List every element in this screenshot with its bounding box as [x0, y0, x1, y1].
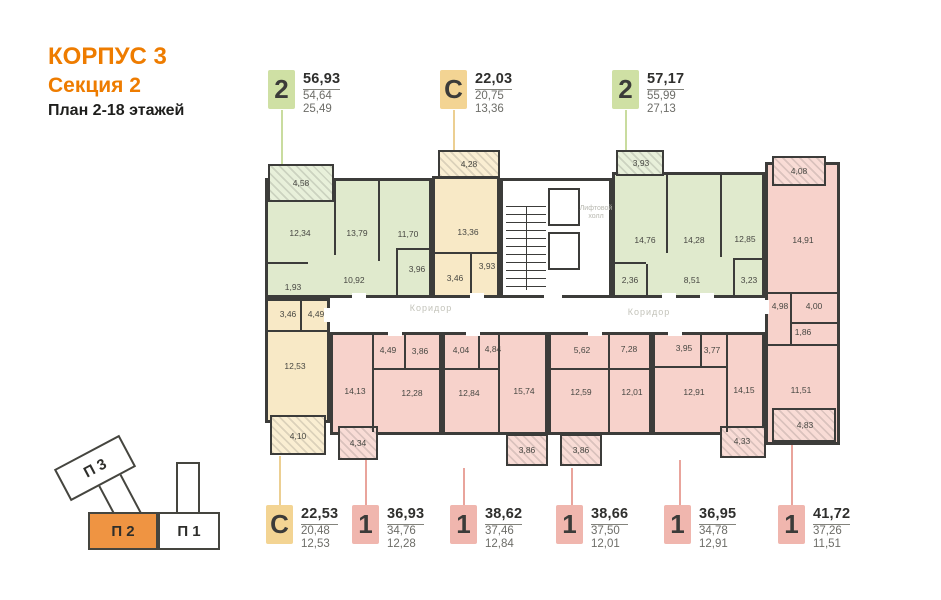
leader-line — [679, 460, 681, 505]
total-area: 56,93 — [303, 71, 340, 90]
room-area-label: 4,34 — [350, 438, 367, 448]
plan-header: КОРПУС 3 Секция 2 План 2-18 этажей — [48, 42, 184, 121]
minimap-section-label: П 1 — [177, 523, 200, 540]
wall-segment — [434, 252, 498, 254]
door-opening — [588, 329, 602, 336]
area-value: 37,26 — [813, 525, 850, 538]
room-area-label: 4,49 — [308, 309, 325, 319]
door-opening — [700, 293, 714, 300]
room-area-label: 3,86 — [573, 445, 590, 455]
area-value: 20,75 — [475, 90, 512, 103]
living-area-value: 25,49 — [303, 103, 340, 116]
wall-segment — [334, 181, 336, 255]
apartment-type-badge: 1 — [450, 505, 477, 544]
wall-segment — [396, 248, 432, 250]
area-value: 20,48 — [301, 525, 338, 538]
living-area-value: 13,36 — [475, 103, 512, 116]
wall-segment — [378, 181, 380, 261]
total-area: 22,03 — [475, 71, 512, 90]
room-area-label: 3,96 — [409, 264, 426, 274]
leader-line — [453, 110, 455, 150]
room-area-label: 12,59 — [570, 387, 591, 397]
door-opening — [470, 293, 484, 300]
room-area-label: 14,13 — [344, 386, 365, 396]
room-area-label: 3,93 — [633, 158, 650, 168]
wall-segment — [646, 264, 648, 296]
room-area-label: 4,58 — [293, 178, 310, 188]
wall-segment — [498, 334, 500, 432]
door-opening — [324, 308, 331, 322]
area-value: 54,64 — [303, 90, 340, 103]
wall-segment — [268, 262, 308, 264]
room-area-label: 11,51 — [791, 385, 812, 395]
minimap-section-p1[interactable]: П 1 — [158, 512, 220, 550]
section-title: Секция 2 — [48, 73, 184, 99]
total-area: 38,62 — [485, 506, 522, 525]
apartment-card-top-2-right[interactable]: 2 57,17 55,99 27,13 — [612, 70, 684, 116]
apartment-type-badge: 1 — [664, 505, 691, 544]
living-area-value: 27,13 — [647, 103, 684, 116]
room-area-label: 12,91 — [683, 387, 704, 397]
total-area: 41,72 — [813, 506, 850, 525]
plan-subtitle: План 2-18 этажей — [48, 101, 184, 121]
room-area-label: 12,53 — [284, 361, 305, 371]
room-area-label: 14,91 — [792, 235, 813, 245]
door-opening — [388, 329, 402, 336]
apartment-type-badge: 1 — [352, 505, 379, 544]
apartment-type-badge: С — [266, 505, 293, 544]
wall-segment — [444, 368, 498, 370]
total-area: 36,93 — [387, 506, 424, 525]
room-area-label: 12,34 — [289, 228, 310, 238]
total-area: 38,66 — [591, 506, 628, 525]
apartment-card-bottom-1c[interactable]: 1 38,66 37,50 12,01 — [556, 505, 628, 551]
apartment-card-top-2-left[interactable]: 2 56,93 54,64 25,49 — [268, 70, 340, 116]
total-area: 36,95 — [699, 506, 736, 525]
wall-segment — [374, 368, 440, 370]
wall-segment — [550, 368, 650, 370]
room-area-label: 4,83 — [797, 420, 814, 430]
area-value: 37,46 — [485, 525, 522, 538]
corridor-label: Коридор — [410, 303, 453, 313]
room-area-label: 14,15 — [733, 385, 754, 395]
room-area-label: 7,28 — [621, 344, 638, 354]
wall-segment — [790, 294, 792, 344]
room-area-label: 13,36 — [457, 227, 478, 237]
wall-segment — [478, 334, 480, 368]
apartment-type-badge: 1 — [556, 505, 583, 544]
apartment-top-studio[interactable] — [432, 176, 500, 298]
total-area: 22,53 — [301, 506, 338, 525]
room-area-label: 1,86 — [795, 327, 812, 337]
room-area-label: 3,86 — [519, 445, 536, 455]
wall-segment — [372, 334, 374, 432]
apartment-type-badge: С — [440, 70, 467, 109]
apartment-card-bottom-1a[interactable]: 1 36,93 34,76 12,28 — [352, 505, 424, 551]
wall-segment — [470, 254, 472, 296]
door-opening — [544, 293, 562, 300]
leader-line — [463, 468, 465, 505]
wall-segment — [733, 260, 735, 296]
room-area-label: 3,46 — [280, 309, 297, 319]
room-area-label: 14,76 — [634, 235, 655, 245]
room-area-label: 4,33 — [734, 436, 751, 446]
room-area-label: 3,93 — [479, 261, 496, 271]
elevator-hall-label: Лифтовой холл — [579, 205, 613, 222]
elevator-shaft — [548, 232, 580, 270]
leader-line — [365, 460, 367, 505]
living-area-value: 12,28 — [387, 538, 424, 551]
minimap-section-p2[interactable]: П 2 — [88, 512, 158, 550]
room-area-label: 8,51 — [684, 275, 701, 285]
room-area-label: 12,28 — [401, 388, 422, 398]
room-area-label: 4,08 — [791, 166, 808, 176]
door-opening — [662, 293, 676, 300]
room-area-label: 3,77 — [704, 345, 721, 355]
room-area-label: 14,28 — [683, 235, 704, 245]
room-area-label: 3,46 — [447, 273, 464, 283]
minimap-tower — [176, 462, 200, 514]
room-area-label: 10,92 — [343, 275, 364, 285]
elevator-shaft — [548, 188, 580, 226]
door-opening — [668, 329, 682, 336]
apartment-card-bottom-studio[interactable]: С 22,53 20,48 12,53 — [266, 505, 338, 551]
wall-segment — [768, 344, 838, 346]
door-opening — [466, 329, 480, 336]
room-area-label: 3,95 — [676, 343, 693, 353]
apartment-card-top-studio[interactable]: С 22,03 20,75 13,36 — [440, 70, 512, 116]
area-value: 37,50 — [591, 525, 628, 538]
room-area-label: 4,10 — [290, 431, 307, 441]
wall-segment — [768, 292, 838, 294]
room-area-label: 4,98 — [772, 301, 789, 311]
wall-segment — [396, 250, 398, 296]
building-title: КОРПУС 3 — [48, 42, 184, 72]
apartment-card-bottom-1d[interactable]: 1 36,95 34,78 12,91 — [664, 505, 736, 551]
living-area-value: 11,51 — [813, 538, 850, 551]
room-area-label: 4,49 — [380, 345, 397, 355]
wall-segment — [654, 366, 726, 368]
room-area-label: 12,85 — [734, 234, 755, 244]
minimap-section-label: П 3 — [81, 455, 110, 481]
area-value: 55,99 — [647, 90, 684, 103]
wall-segment — [526, 206, 527, 290]
wall-segment — [720, 175, 722, 257]
wall-segment — [404, 334, 406, 368]
wall-segment — [733, 258, 763, 260]
apartment-card-bottom-1b[interactable]: 1 38,62 37,46 12,84 — [450, 505, 522, 551]
living-area-value: 12,91 — [699, 538, 736, 551]
room-area-label: 4,04 — [453, 345, 470, 355]
living-area-value: 12,84 — [485, 538, 522, 551]
leader-line — [571, 468, 573, 505]
room-area-label: 3,23 — [741, 275, 758, 285]
living-area-value: 12,53 — [301, 538, 338, 551]
leader-line — [279, 456, 281, 505]
corridor-label: Коридор — [628, 307, 671, 317]
minimap-section-label: П 2 — [111, 523, 134, 540]
wall-segment — [300, 300, 302, 330]
wall-segment — [790, 322, 838, 324]
door-opening — [352, 293, 366, 300]
apartment-card-bottom-1e[interactable]: 1 41,72 37,26 11,51 — [778, 505, 850, 551]
room-area-label: 1,93 — [285, 282, 302, 292]
total-area: 57,17 — [647, 71, 684, 90]
wall-segment — [268, 330, 328, 332]
room-area-label: 12,01 — [621, 387, 642, 397]
room-area-label: 4,00 — [806, 301, 823, 311]
apartment-type-badge: 2 — [268, 70, 295, 109]
living-area-value: 12,01 — [591, 538, 628, 551]
room-area-label: 13,79 — [346, 228, 367, 238]
room-area-label: 5,62 — [574, 345, 591, 355]
wall-segment — [726, 334, 728, 432]
room-area-label: 11,70 — [398, 229, 419, 239]
door-opening — [762, 300, 769, 314]
room-area-label: 4,28 — [461, 159, 478, 169]
wall-segment — [666, 175, 668, 253]
apartment-type-badge: 1 — [778, 505, 805, 544]
floorplan-page: КОРПУС 3 Секция 2 План 2-18 этажей 2 56,… — [0, 0, 941, 600]
leader-line — [791, 444, 793, 505]
room-area-label: 2,36 — [622, 275, 639, 285]
leader-line — [281, 110, 283, 168]
area-value: 34,76 — [387, 525, 424, 538]
wall-segment — [614, 262, 646, 264]
room-area-label: 3,86 — [412, 346, 429, 356]
wall-segment — [608, 334, 610, 432]
wall-segment — [700, 334, 702, 366]
area-value: 34,78 — [699, 525, 736, 538]
room-area-label: 12,84 — [458, 388, 479, 398]
apartment-type-badge: 2 — [612, 70, 639, 109]
room-area-label: 15,74 — [513, 386, 534, 396]
